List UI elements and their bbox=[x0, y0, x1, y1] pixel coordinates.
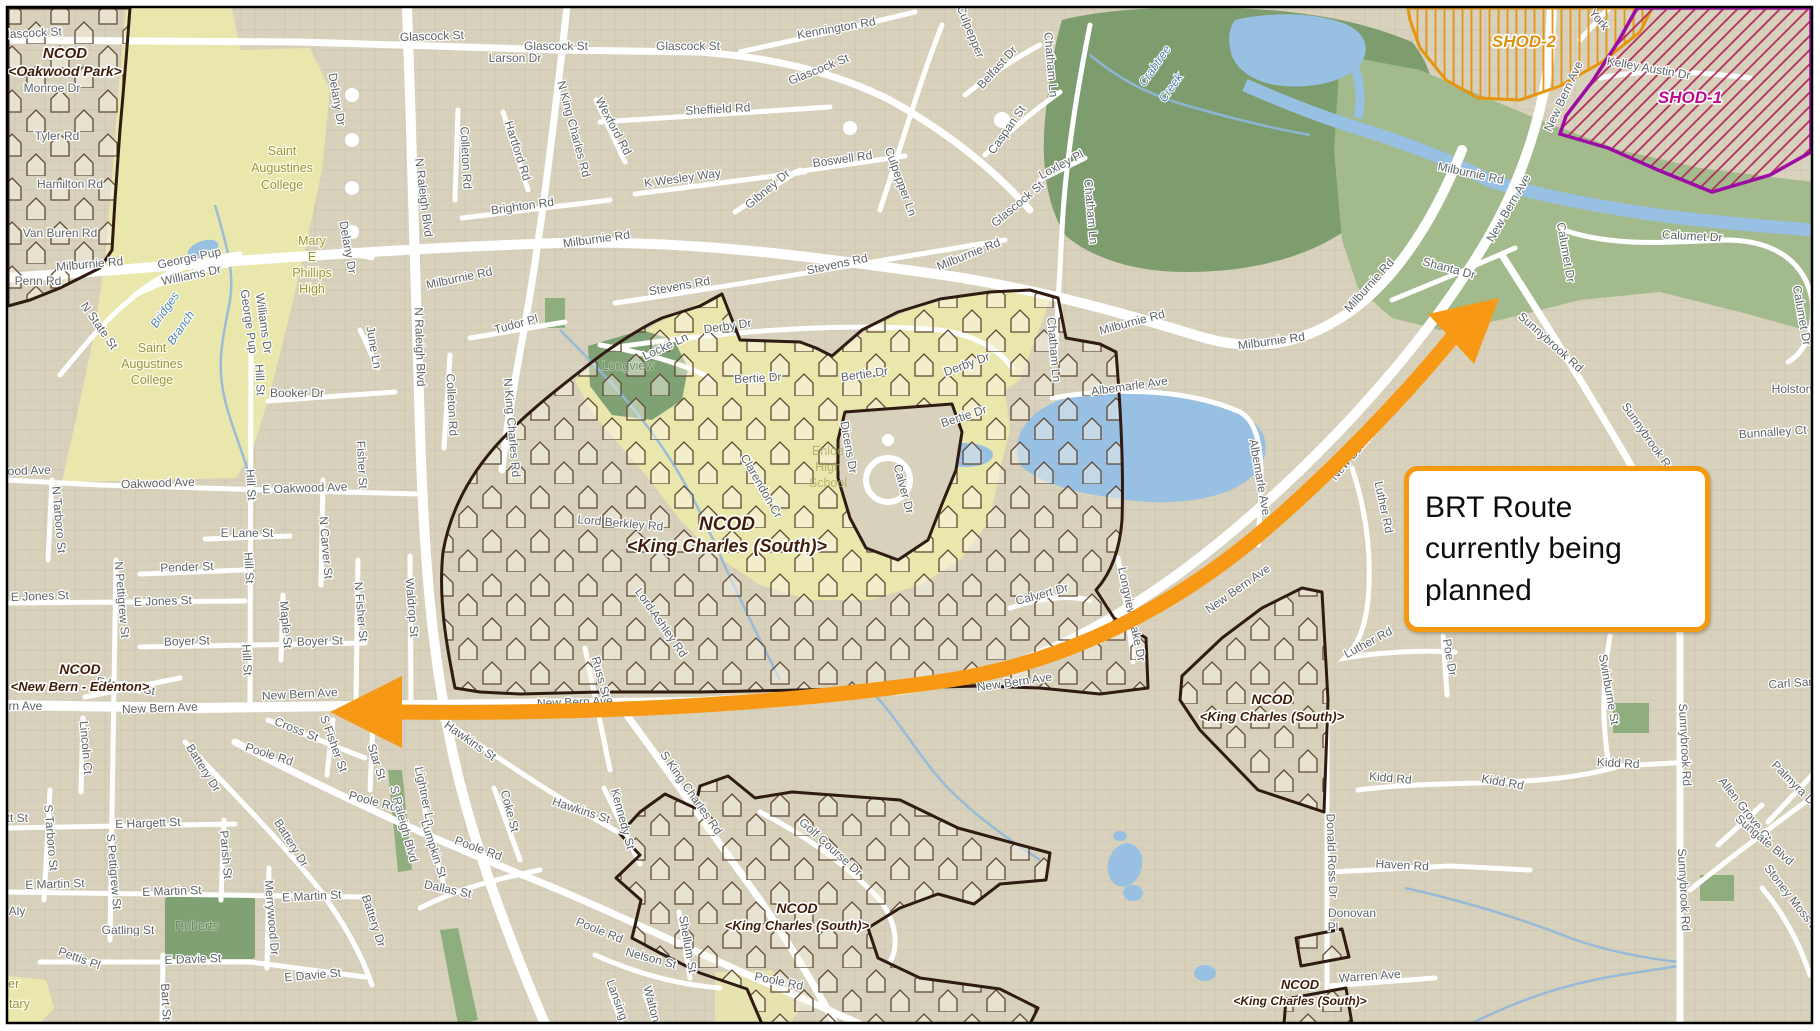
street-label: Pender St bbox=[160, 559, 214, 575]
place-label: Saint bbox=[138, 341, 167, 355]
street-label: Penn Rd bbox=[15, 274, 62, 288]
street-label: Hill St bbox=[241, 552, 257, 585]
street-label: Fisher St bbox=[354, 440, 371, 489]
street-label: Hamilton Rd bbox=[37, 177, 103, 191]
place-label: E bbox=[308, 250, 316, 264]
shod-label: SHOD-2 bbox=[1492, 32, 1557, 51]
street-label: Bart St bbox=[158, 983, 174, 1021]
street-label: Bertie Dr bbox=[734, 370, 782, 386]
street-label: E Davie St bbox=[164, 951, 222, 967]
street-label: Boyer St bbox=[164, 633, 211, 649]
street-label: Van Buren Rd bbox=[23, 226, 98, 240]
ncod-label-title: NCOD bbox=[59, 661, 100, 677]
place-label: College bbox=[261, 178, 303, 192]
street-label: Gatling St bbox=[102, 923, 155, 937]
street-label: Glascock St bbox=[400, 28, 465, 44]
place-label: Augustines bbox=[121, 357, 183, 371]
brt-callout: BRT Route currently being planned bbox=[1404, 466, 1710, 632]
ncod-label-name: <King Charles (South)> bbox=[627, 536, 828, 556]
map-screenshot: Glascock StGlascock StLarson DrGlascock … bbox=[0, 0, 1820, 1031]
street-label: E Oakwood Ave bbox=[262, 480, 348, 497]
street-label: New Bern Ave bbox=[122, 700, 199, 717]
ncod-label-title: NCOD bbox=[1251, 691, 1292, 707]
place-label: High bbox=[815, 460, 841, 474]
shod-label: SHOD-1 bbox=[1658, 88, 1722, 107]
ncod-label-name: <King Charles (South)> bbox=[725, 918, 870, 933]
street-label: E Hargett St bbox=[115, 815, 181, 831]
place-label: School bbox=[809, 476, 847, 490]
street-label: Tyler Rd bbox=[35, 129, 80, 143]
place-label: College bbox=[131, 373, 173, 387]
street-label: E Lane St bbox=[221, 526, 274, 540]
street-label: Glascock St bbox=[524, 39, 589, 53]
street-label: E Martin St bbox=[142, 883, 202, 899]
place-label: Roberts bbox=[175, 919, 219, 933]
street-label: Larson Dr bbox=[489, 51, 542, 65]
street-label: Oakwood Ave bbox=[121, 475, 196, 492]
place-label: Mary bbox=[298, 234, 327, 248]
street-label: Monroe Dr bbox=[24, 81, 81, 95]
street-label: Pl bbox=[1328, 920, 1339, 934]
street-label: Kidd Rd bbox=[1597, 755, 1640, 771]
place-label: High bbox=[299, 282, 325, 296]
place-label: Augustines bbox=[251, 161, 313, 175]
street-label: Haven Rd bbox=[1375, 857, 1429, 874]
street-label: Glascock St bbox=[656, 39, 721, 53]
street-label: N Raleigh Blvd bbox=[412, 307, 429, 387]
street-label: E Jones St bbox=[134, 593, 193, 609]
place-label: Saint bbox=[268, 144, 297, 158]
brt-callout-text: BRT Route currently being planned bbox=[1425, 491, 1622, 607]
ncod-label-title: NCOD bbox=[43, 45, 87, 62]
street-label: Donovan bbox=[1328, 906, 1376, 920]
street-label: Boyer St bbox=[297, 633, 344, 649]
street-label: E Martin St bbox=[25, 876, 85, 892]
street-label: Hill St bbox=[252, 364, 268, 397]
ncod-label-title: NCOD bbox=[1281, 977, 1320, 992]
street-label: Holston bbox=[1772, 382, 1813, 396]
ncod-label-name: <King Charles (South)> bbox=[1233, 994, 1366, 1008]
place-label: Longview bbox=[602, 359, 656, 373]
place-label: Enloe bbox=[812, 444, 844, 458]
street-label: Donald Ross Dr bbox=[1324, 813, 1341, 898]
street-label: Booker Dr bbox=[270, 386, 324, 400]
ncod-label-title: NCOD bbox=[699, 514, 755, 535]
street-label: Hill St bbox=[239, 644, 255, 677]
ncod-label-name: <New Bern - Edenton> bbox=[11, 679, 150, 694]
ncod-label-name: <Oakwood Park> bbox=[8, 63, 122, 79]
street-label: E Jones St bbox=[11, 588, 70, 604]
ncod-label-title: NCOD bbox=[776, 900, 817, 916]
place-label: Phillips bbox=[292, 266, 332, 280]
street-label: Hill St bbox=[243, 469, 259, 502]
ncod-label-name: <King Charles (South)> bbox=[1200, 709, 1345, 724]
